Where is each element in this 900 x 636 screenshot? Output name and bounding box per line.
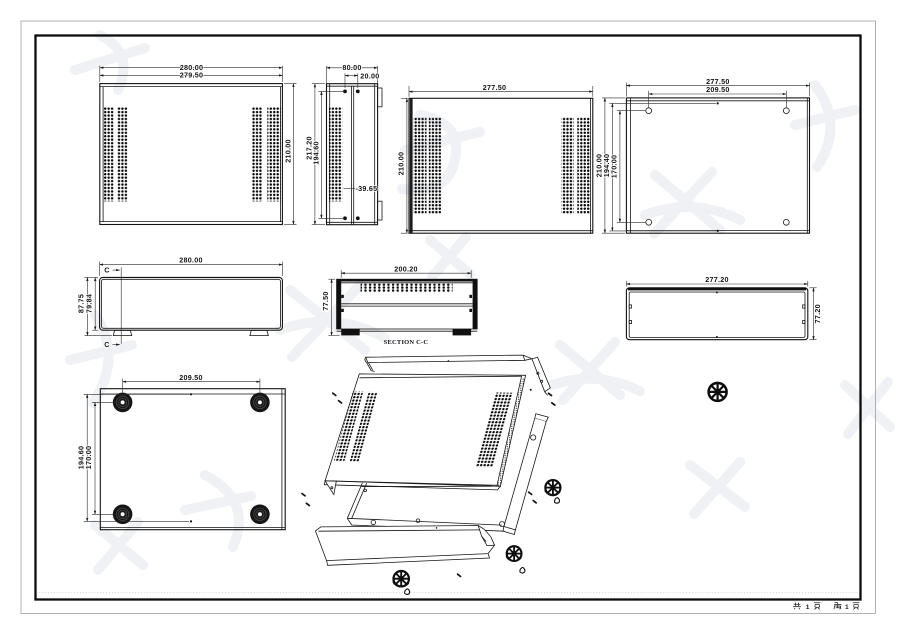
svg-text:170.00: 170.00 bbox=[610, 155, 619, 178]
svg-text:77.50: 77.50 bbox=[321, 291, 330, 310]
svg-text:1: 1 bbox=[806, 604, 810, 611]
svg-text:209.50: 209.50 bbox=[179, 373, 202, 382]
svg-text:SECTION C-C: SECTION C-C bbox=[384, 339, 429, 346]
svg-text:280.00: 280.00 bbox=[179, 256, 202, 265]
svg-text:77.20: 77.20 bbox=[813, 304, 822, 323]
svg-text:210.00: 210.00 bbox=[396, 152, 405, 175]
svg-text:79.84: 79.84 bbox=[84, 294, 93, 313]
svg-text:279.50: 279.50 bbox=[180, 71, 203, 80]
svg-text:C: C bbox=[104, 266, 109, 275]
svg-text:210.00: 210.00 bbox=[283, 139, 292, 162]
svg-text:200.20: 200.20 bbox=[394, 264, 417, 273]
svg-text:20.00: 20.00 bbox=[360, 72, 379, 81]
svg-text:-39.65: -39.65 bbox=[356, 184, 378, 193]
svg-text:194.60: 194.60 bbox=[311, 141, 320, 164]
svg-text:209.50: 209.50 bbox=[706, 85, 729, 94]
svg-text:277.50: 277.50 bbox=[483, 83, 506, 92]
svg-text:80.00: 80.00 bbox=[342, 63, 361, 72]
svg-text:277.20: 277.20 bbox=[705, 275, 728, 284]
svg-text:C: C bbox=[104, 340, 109, 349]
svg-text:170.00: 170.00 bbox=[84, 446, 93, 469]
svg-text:1: 1 bbox=[845, 604, 849, 611]
